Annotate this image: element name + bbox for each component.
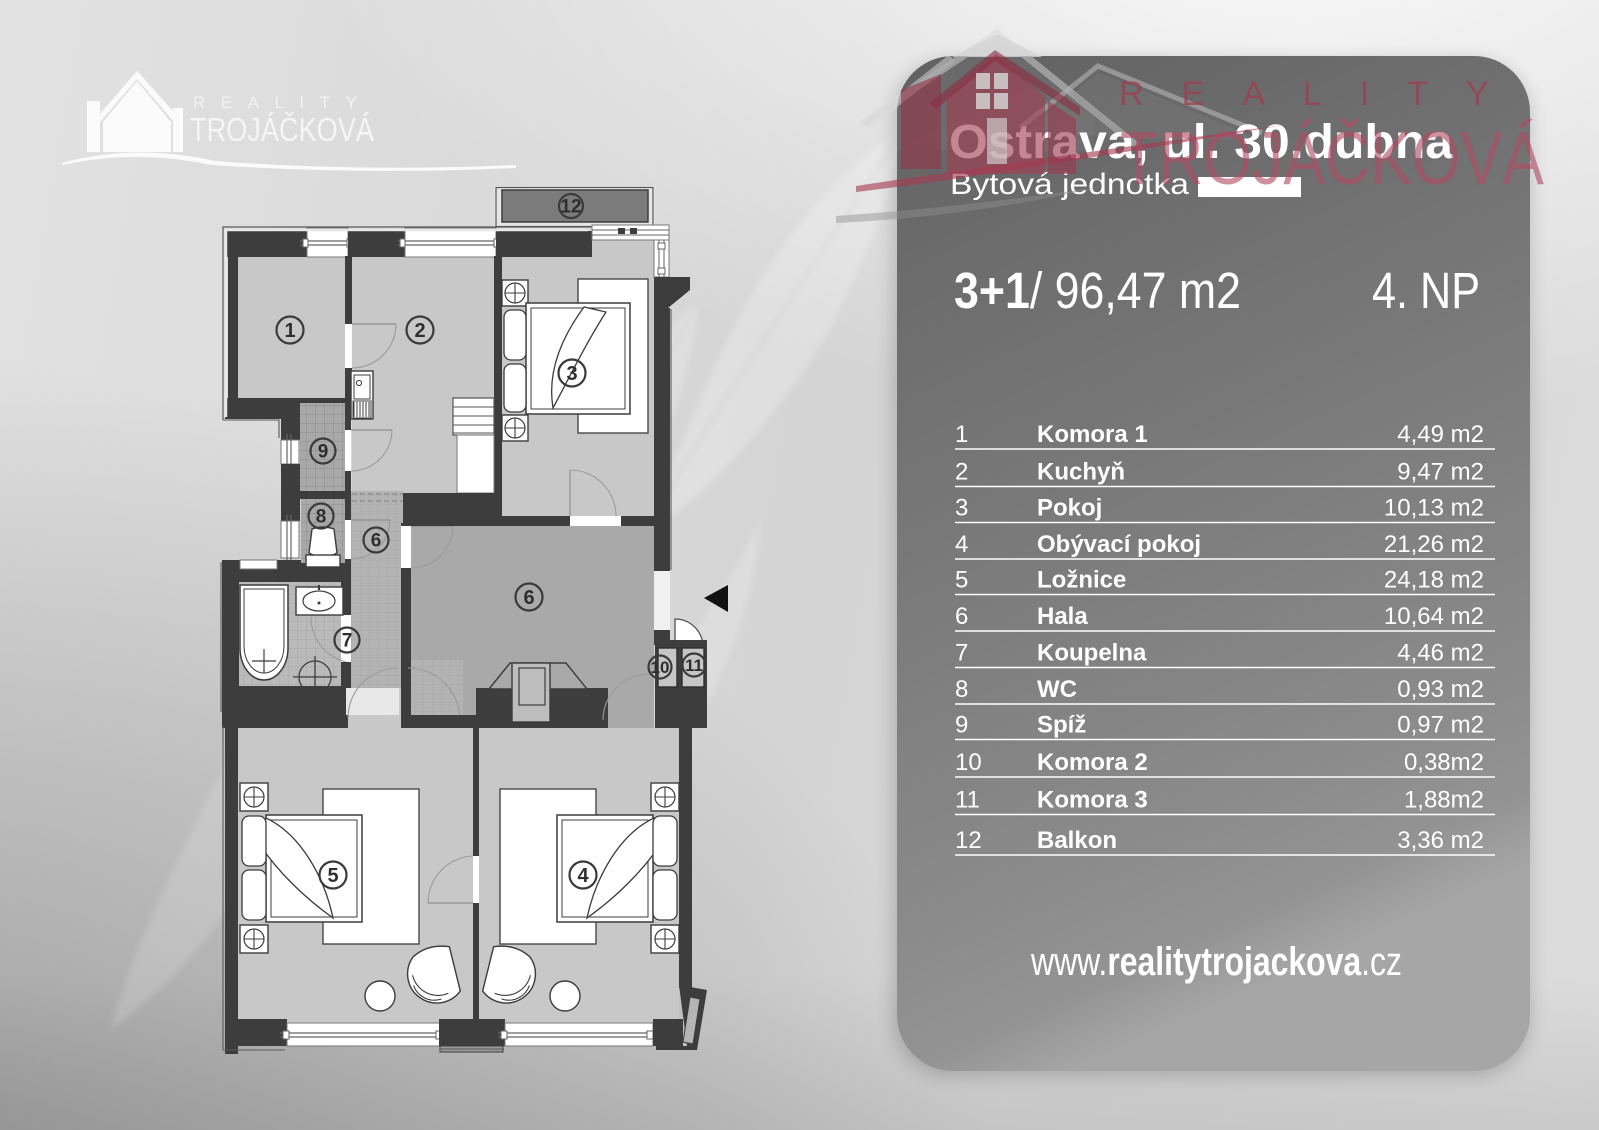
svg-text:6: 6: [955, 603, 968, 630]
svg-text:WC: WC: [1037, 676, 1077, 703]
svg-text:21,26 m2: 21,26 m2: [1384, 531, 1484, 558]
svg-text:3: 3: [955, 495, 968, 522]
svg-text:9: 9: [955, 712, 968, 739]
svg-text:Ložnice: Ložnice: [1037, 567, 1126, 594]
svg-text:10: 10: [651, 658, 670, 677]
svg-text:0,93 m2: 0,93 m2: [1397, 676, 1484, 703]
svg-text:TROJÁČKOVÁ: TROJÁČKOVÁ: [1120, 116, 1544, 200]
svg-text:Komora 2: Komora 2: [1037, 749, 1148, 776]
svg-text:1: 1: [955, 421, 968, 448]
svg-text:Spíž: Spíž: [1037, 712, 1086, 739]
svg-text:8: 8: [955, 676, 968, 703]
svg-text:5: 5: [327, 865, 338, 887]
svg-text:11: 11: [685, 656, 703, 675]
svg-text:24,18 m2: 24,18 m2: [1384, 567, 1484, 594]
svg-text:Koupelna: Koupelna: [1037, 640, 1147, 667]
svg-text:10,13 m2: 10,13 m2: [1384, 495, 1484, 522]
svg-text:Komora 1: Komora 1: [1037, 421, 1148, 448]
svg-text:10,64 m2: 10,64 m2: [1384, 603, 1484, 630]
svg-text:Komora 3: Komora 3: [1037, 787, 1148, 814]
svg-text:7: 7: [342, 631, 353, 652]
svg-text:2: 2: [955, 459, 968, 486]
svg-text:Balkon: Balkon: [1037, 827, 1117, 854]
svg-text:0,97 m2: 0,97 m2: [1397, 712, 1484, 739]
svg-text:4,49 m2: 4,49 m2: [1397, 421, 1484, 448]
svg-text:11: 11: [955, 787, 980, 814]
svg-text:1,88m2: 1,88m2: [1404, 787, 1484, 814]
svg-text:2: 2: [414, 320, 425, 342]
svg-text:4. NP: 4. NP: [1372, 262, 1480, 319]
svg-text:3: 3: [566, 363, 577, 385]
svg-text:6: 6: [371, 531, 382, 552]
svg-text:4: 4: [577, 865, 589, 887]
svg-text:REALITY: REALITY: [193, 93, 372, 112]
svg-text:Kuchyň: Kuchyň: [1037, 459, 1125, 486]
svg-text:Pokoj: Pokoj: [1037, 495, 1102, 522]
svg-text:4: 4: [955, 531, 968, 558]
svg-text:3+1/ 96,47 m2: 3+1/ 96,47 m2: [954, 262, 1241, 319]
svg-text:8: 8: [316, 507, 327, 528]
svg-text:1: 1: [284, 320, 295, 342]
svg-text:3,36 m2: 3,36 m2: [1397, 827, 1484, 854]
svg-text:0,38m2: 0,38m2: [1404, 749, 1484, 776]
svg-text:Hala: Hala: [1037, 603, 1088, 630]
svg-text:10: 10: [955, 749, 982, 776]
svg-text:12: 12: [955, 827, 982, 854]
svg-text:12: 12: [560, 197, 581, 218]
svg-text:5: 5: [955, 567, 968, 594]
svg-text:6: 6: [523, 587, 534, 609]
svg-text:9: 9: [318, 442, 329, 463]
svg-text:www.realitytrojackova.cz: www.realitytrojackova.cz: [1030, 940, 1402, 984]
svg-text:Obývací pokoj: Obývací pokoj: [1037, 531, 1201, 558]
svg-text:4,46 m2: 4,46 m2: [1397, 640, 1484, 667]
svg-text:TROJÁČKOVÁ: TROJÁČKOVÁ: [190, 111, 374, 148]
svg-text:9,47 m2: 9,47 m2: [1397, 459, 1484, 486]
svg-text:7: 7: [955, 640, 968, 667]
svg-text:REALITY: REALITY: [1119, 75, 1527, 113]
